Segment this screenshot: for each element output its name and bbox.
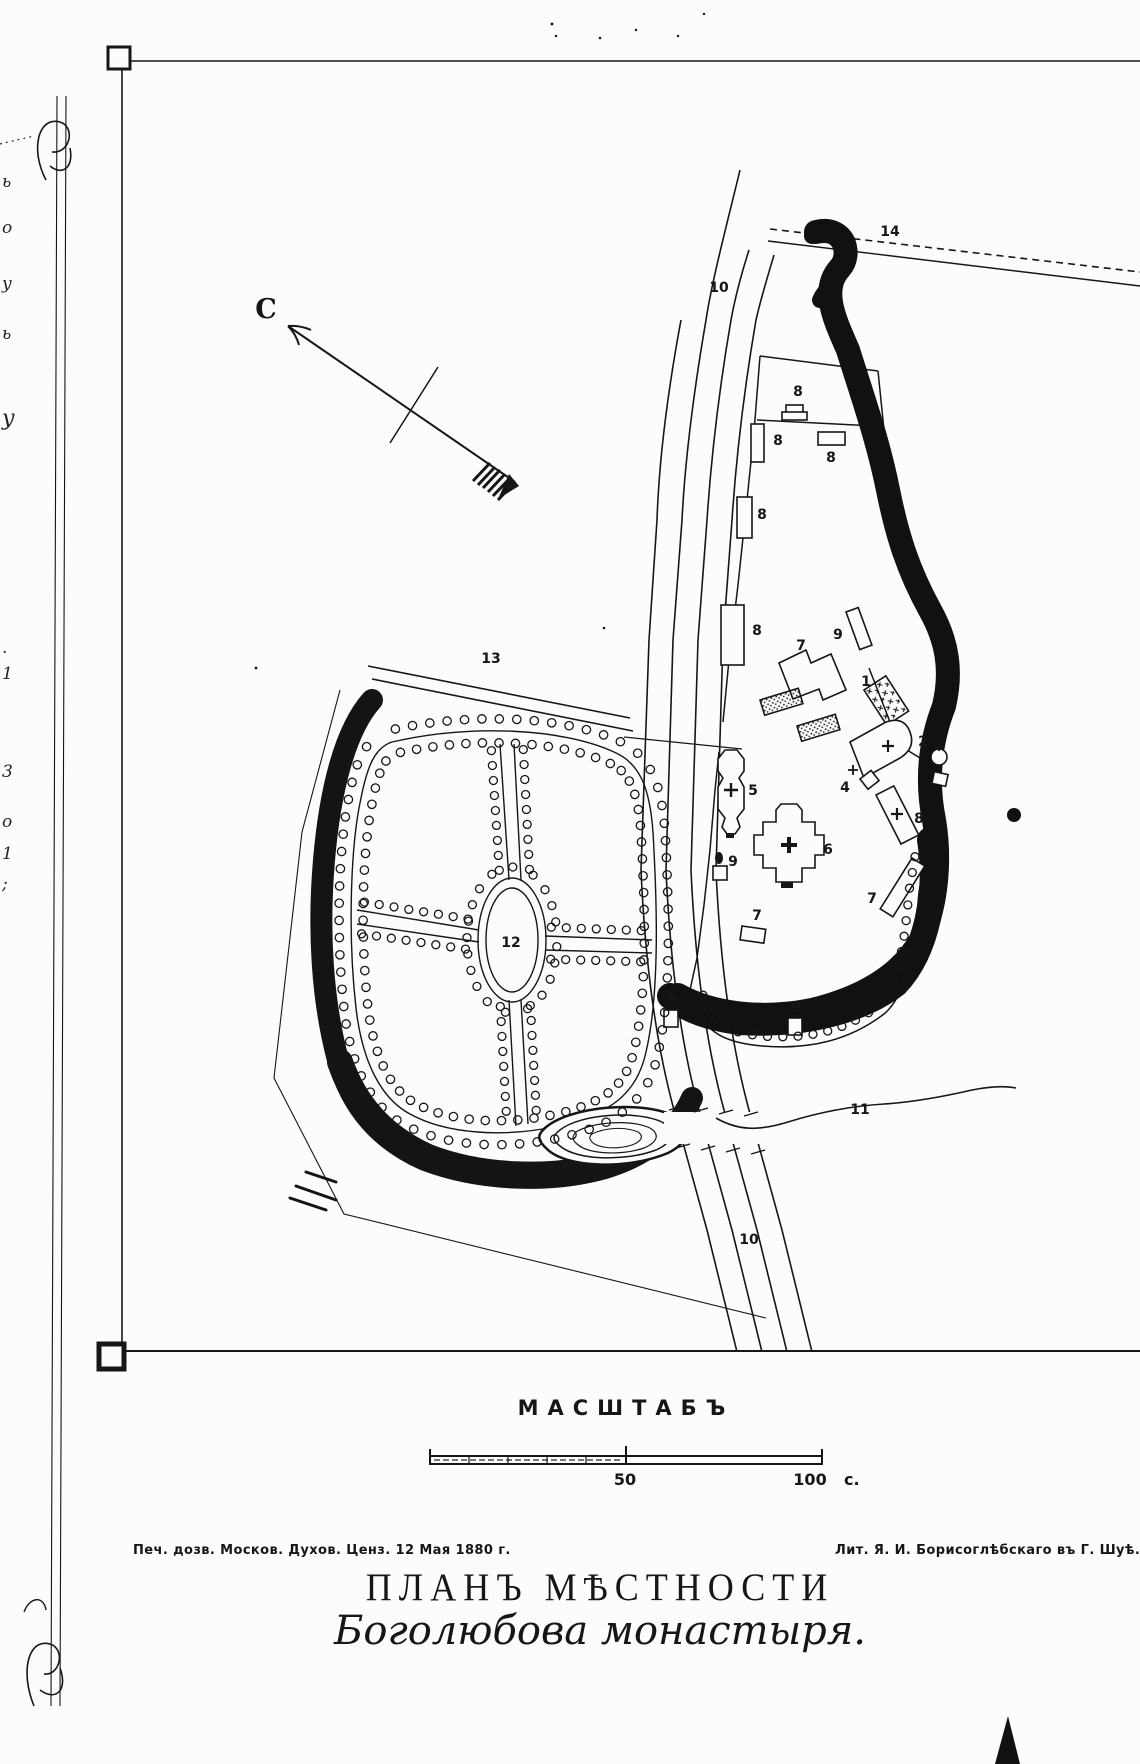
tree-circle — [390, 903, 398, 911]
scanned-map-page: С10101314125677712488888899991111 МАСШТА… — [0, 0, 1140, 1764]
building-8-cross — [876, 786, 919, 844]
tree-circle — [664, 957, 672, 965]
tree-circle — [562, 1108, 570, 1116]
building-8a — [751, 424, 764, 462]
tree-circle — [366, 1016, 374, 1024]
tree-circle — [577, 924, 585, 932]
tree-circle — [497, 1018, 505, 1026]
tree-circle — [520, 761, 528, 769]
tree-circle — [632, 1038, 640, 1046]
map-number-label: 9 — [791, 1000, 801, 1016]
tree-circle — [639, 872, 647, 880]
tree-circle — [369, 1032, 377, 1040]
tree-circle — [640, 888, 648, 896]
building-8b — [818, 432, 845, 445]
tree-circle — [546, 975, 554, 983]
tree-circle — [502, 1107, 510, 1115]
tree-circle — [498, 1141, 506, 1149]
map-number-label: 7 — [752, 908, 762, 924]
tree-circle — [661, 837, 669, 845]
tree-circle — [548, 902, 556, 910]
tree-circle — [487, 747, 495, 755]
margin-fragment: 3 — [2, 762, 13, 782]
tree-circle — [348, 778, 356, 786]
scale-unit: с. — [844, 1470, 860, 1489]
tree-circle — [622, 1067, 630, 1075]
tree-circle — [406, 1096, 414, 1104]
tree-circle — [335, 899, 343, 907]
margin-fragment: о — [2, 218, 12, 238]
compass-north-letter: С — [255, 294, 277, 325]
scale-label-50: 50 — [600, 1470, 650, 1489]
tree-circles — [335, 715, 919, 1149]
map-number-label: 8 — [773, 433, 783, 449]
tree-circle — [386, 1075, 394, 1083]
tree-circle — [490, 792, 498, 800]
tree-circle — [473, 982, 481, 990]
tree-circle — [488, 870, 496, 878]
tree-circle — [462, 739, 470, 747]
tree-circle — [443, 717, 451, 725]
tree-circle — [639, 973, 647, 981]
tree-circle — [638, 855, 646, 863]
tree-circle — [495, 715, 503, 723]
map-number-label: 7 — [867, 891, 877, 907]
tree-circle — [419, 1103, 427, 1111]
tree-circle — [606, 759, 614, 767]
tree-circle — [360, 950, 368, 958]
tree-circle — [371, 784, 379, 792]
map-number-label: 8 — [757, 507, 767, 523]
tree-circle — [904, 901, 912, 909]
tree-circle — [501, 1077, 509, 1085]
tree-circle — [462, 945, 470, 953]
tree-circle — [530, 1114, 538, 1122]
tree-circle — [658, 1026, 666, 1034]
tree-circle — [509, 863, 517, 871]
tree-circle — [434, 1109, 442, 1117]
tree-circle — [478, 739, 486, 747]
tree-circle — [548, 719, 556, 727]
tree-circle — [902, 917, 910, 925]
tree-circle — [492, 821, 500, 829]
tree-circle — [524, 835, 532, 843]
tree-circle — [362, 983, 370, 991]
tree-circle — [493, 836, 501, 844]
tree-circle — [495, 866, 503, 874]
tree-circle — [522, 791, 530, 799]
tree-circle — [341, 813, 349, 821]
tree-circle — [481, 1116, 489, 1124]
tree-circle — [335, 933, 343, 941]
tree-circle — [339, 830, 347, 838]
tree-circle — [531, 1076, 539, 1084]
map-number-label: 8 — [826, 450, 836, 466]
tree-circle — [552, 918, 560, 926]
tree-circle — [617, 766, 625, 774]
river-dot — [1007, 808, 1021, 822]
tree-circle — [376, 769, 384, 777]
map-number-label: 10 — [739, 1232, 759, 1248]
map-number-label: 5 — [748, 783, 758, 799]
tree-circle — [432, 941, 440, 949]
tree-circle — [515, 1140, 523, 1148]
margin-fragment: ; — [2, 874, 8, 894]
tree-circle — [513, 715, 521, 723]
tree-circle — [342, 1020, 350, 1028]
map-number-label: 7 — [796, 638, 806, 654]
tree-circle — [592, 956, 600, 964]
tree-circle — [335, 916, 343, 924]
map-number-label: 9 — [833, 627, 843, 643]
tree-circle — [500, 1062, 508, 1070]
tree-circle — [396, 748, 404, 756]
building-7-small — [740, 926, 766, 943]
tree-circle — [447, 943, 455, 951]
tree-circle — [434, 910, 442, 918]
tree-circle — [622, 957, 630, 965]
stippled-plot-1 — [760, 688, 803, 715]
tree-circle — [483, 998, 491, 1006]
margin-fragment: у — [2, 274, 12, 294]
page-subtitle: Боголюбова монастыря. — [330, 1608, 870, 1654]
tree-circle — [340, 1002, 348, 1010]
tree-circle — [361, 849, 369, 857]
garden-paths — [351, 731, 656, 1133]
tree-circle — [523, 820, 531, 828]
tree-circle — [604, 1089, 612, 1097]
tree-circle — [532, 1106, 540, 1114]
tree-circle — [336, 865, 344, 873]
building-9-riverside — [846, 608, 872, 650]
tree-circle — [368, 800, 376, 808]
tree-circle — [467, 966, 475, 974]
tree-circle — [529, 1046, 537, 1054]
tree-circle — [417, 939, 425, 947]
imprint-lithographer: Лит. Я. И. Борисоглѣбскаго въ Г. Шуѣ. — [835, 1543, 1117, 1558]
tree-circle — [633, 1095, 641, 1103]
tree-circle — [497, 1117, 505, 1125]
tree-circle — [427, 1132, 435, 1140]
tree-circle — [445, 741, 453, 749]
stippled-plot-2 — [797, 714, 840, 741]
tree-circle — [373, 932, 381, 940]
tree-circle — [468, 901, 476, 909]
building-1-chapel — [850, 720, 912, 778]
tree-circle — [644, 1079, 652, 1087]
building-8-gate — [782, 405, 807, 420]
tree-circle — [338, 985, 346, 993]
tree-circle — [530, 717, 538, 725]
tree-circle — [336, 951, 344, 959]
map-number-label: 13 — [481, 651, 500, 667]
tree-circle — [519, 746, 527, 754]
margin-fragment: 1 — [2, 664, 13, 684]
tree-circle — [426, 719, 434, 727]
tree-circle — [449, 913, 457, 921]
tree-circle — [530, 1061, 538, 1069]
building-9a — [664, 1010, 678, 1027]
scale-label-100: 100 — [782, 1470, 838, 1489]
tree-circle — [360, 866, 368, 874]
map-number-label: 1 — [861, 674, 871, 690]
tree-circle — [562, 924, 570, 932]
tree-circle — [522, 806, 530, 814]
tree-circle — [646, 765, 654, 773]
map-number-label: 6 — [823, 842, 833, 858]
tree-circle — [592, 925, 600, 933]
scale-heading: МАСШТАБЪ — [426, 1396, 826, 1420]
tree-circle — [521, 776, 529, 784]
tree-circle — [410, 1125, 418, 1133]
tree-circle — [498, 1032, 506, 1040]
tree-circle — [375, 901, 383, 909]
tree-circle — [565, 722, 573, 730]
tree-circle — [900, 932, 908, 940]
tree-circle — [359, 916, 367, 924]
tree-circle — [480, 1140, 488, 1148]
tree-circle — [395, 1087, 403, 1095]
map-number-label: 10 — [709, 280, 729, 296]
margin-fragment: у — [2, 406, 15, 431]
scale-bar — [430, 1446, 822, 1464]
tree-circle — [634, 749, 642, 757]
tree-circle — [465, 1115, 473, 1123]
tree-circle — [625, 777, 633, 785]
tree-circle — [488, 762, 496, 770]
tree-circle — [528, 1031, 536, 1039]
tree-circle — [353, 761, 361, 769]
tree-circle — [547, 923, 555, 931]
tree-circle — [541, 886, 549, 894]
tree-circle — [634, 805, 642, 813]
map-number-label: 8 — [793, 384, 803, 400]
tree-circle — [359, 883, 367, 891]
tree-circle — [658, 801, 666, 809]
tree-circle — [387, 934, 395, 942]
tree-circle — [544, 742, 552, 750]
tree-circle — [628, 1054, 636, 1062]
tree-circle — [511, 739, 519, 747]
tree-circle — [576, 749, 584, 757]
map-drawing: С10101314125677712488888899991111 — [0, 0, 1140, 1764]
map-number-label: 4 — [840, 780, 850, 796]
tree-circle — [491, 807, 499, 815]
tree-circle — [373, 1047, 381, 1055]
tree-circle — [531, 1091, 539, 1099]
map-number-label: 11 — [850, 1102, 869, 1118]
tree-circle — [622, 926, 630, 934]
tree-circle — [809, 1030, 817, 1038]
map-number-label: 9 — [728, 854, 738, 870]
tree-circle — [824, 1027, 832, 1035]
tree-circle — [614, 1079, 622, 1087]
tree-circle — [499, 1047, 507, 1055]
margin-fragment: 1 — [2, 844, 13, 864]
scan-speckles — [255, 13, 706, 670]
tree-circle — [379, 1062, 387, 1070]
tree-circle — [462, 1139, 470, 1147]
tree-circle — [460, 716, 468, 724]
tree-circle — [538, 991, 546, 999]
tree-circle — [634, 1022, 642, 1030]
tree-circle — [599, 731, 607, 739]
tree-circle — [344, 795, 352, 803]
tree-circle — [501, 1008, 509, 1016]
page-corner-mark — [995, 1716, 1020, 1764]
tree-circle — [391, 725, 399, 733]
tree-circle — [361, 966, 369, 974]
margin-fragment: . — [2, 638, 7, 658]
tree-circle — [514, 1116, 522, 1124]
map-number-label: 11 — [561, 1160, 580, 1176]
tree-circle — [553, 943, 561, 951]
tree-circle — [402, 936, 410, 944]
compass-arrow — [288, 326, 519, 500]
tree-circle — [363, 1000, 371, 1008]
tree-circle — [525, 850, 533, 858]
tree-circle — [494, 851, 502, 859]
tree-circle — [362, 743, 370, 751]
tree-circle — [382, 757, 390, 765]
tree-circle — [420, 908, 428, 916]
margin-fragment: ь — [2, 324, 11, 344]
tree-circle — [651, 1061, 659, 1069]
tree-circle — [489, 777, 497, 785]
tree-circle — [363, 833, 371, 841]
tree-circle — [577, 956, 585, 964]
tree-circle — [638, 989, 646, 997]
tree-circle — [476, 885, 484, 893]
tree-circle — [591, 753, 599, 761]
tree-circle — [337, 968, 345, 976]
stream — [664, 1087, 1016, 1154]
tree-circle — [616, 738, 624, 746]
margin-fragment: ь — [2, 172, 11, 192]
page-title: ПЛАНЪ МѢСТНОСТИ — [350, 1564, 850, 1609]
tree-circle — [546, 1111, 554, 1119]
tree-circle — [637, 1006, 645, 1014]
tree-circle — [607, 957, 615, 965]
building-8c — [737, 497, 752, 538]
map-number-label: 2 — [918, 734, 928, 750]
well-9 — [713, 852, 727, 880]
tree-circle — [577, 1103, 585, 1111]
tree-circle — [562, 956, 570, 964]
tree-circle — [337, 847, 345, 855]
tree-circle — [478, 715, 486, 723]
tree-circle — [664, 922, 672, 930]
tree-circle — [335, 882, 343, 890]
tree-circle — [654, 783, 662, 791]
tree-circle — [346, 1037, 354, 1045]
map-number-label: 8 — [914, 811, 924, 827]
tree-circle — [412, 745, 420, 753]
tree-circle — [607, 926, 615, 934]
map-number-label: 9 — [666, 992, 676, 1008]
tree-circle — [405, 905, 413, 913]
map-number-label: 14 — [880, 224, 900, 240]
imprint-censor: Печ. дозв. Москов. Духов. Ценз. 12 Мая 1… — [133, 1543, 511, 1558]
tree-circle — [495, 739, 503, 747]
tree-circle — [582, 726, 590, 734]
map-number-label: 8 — [752, 623, 762, 639]
tree-circle — [560, 745, 568, 753]
building-8d — [721, 605, 744, 665]
tree-circle — [464, 950, 472, 958]
tree-circle — [449, 1112, 457, 1120]
tree-circle — [631, 790, 639, 798]
tree-circle — [663, 974, 671, 982]
tree-circle — [365, 816, 373, 824]
tree-circle — [527, 1017, 535, 1025]
tree-circle — [501, 1092, 509, 1100]
tree-circle — [591, 1097, 599, 1105]
tree-circle — [429, 743, 437, 751]
margin-fragment: о — [2, 812, 12, 832]
tree-circle — [408, 721, 416, 729]
tree-circle — [444, 1136, 452, 1144]
tree-circle — [528, 740, 536, 748]
map-number-label: 12 — [501, 935, 520, 951]
